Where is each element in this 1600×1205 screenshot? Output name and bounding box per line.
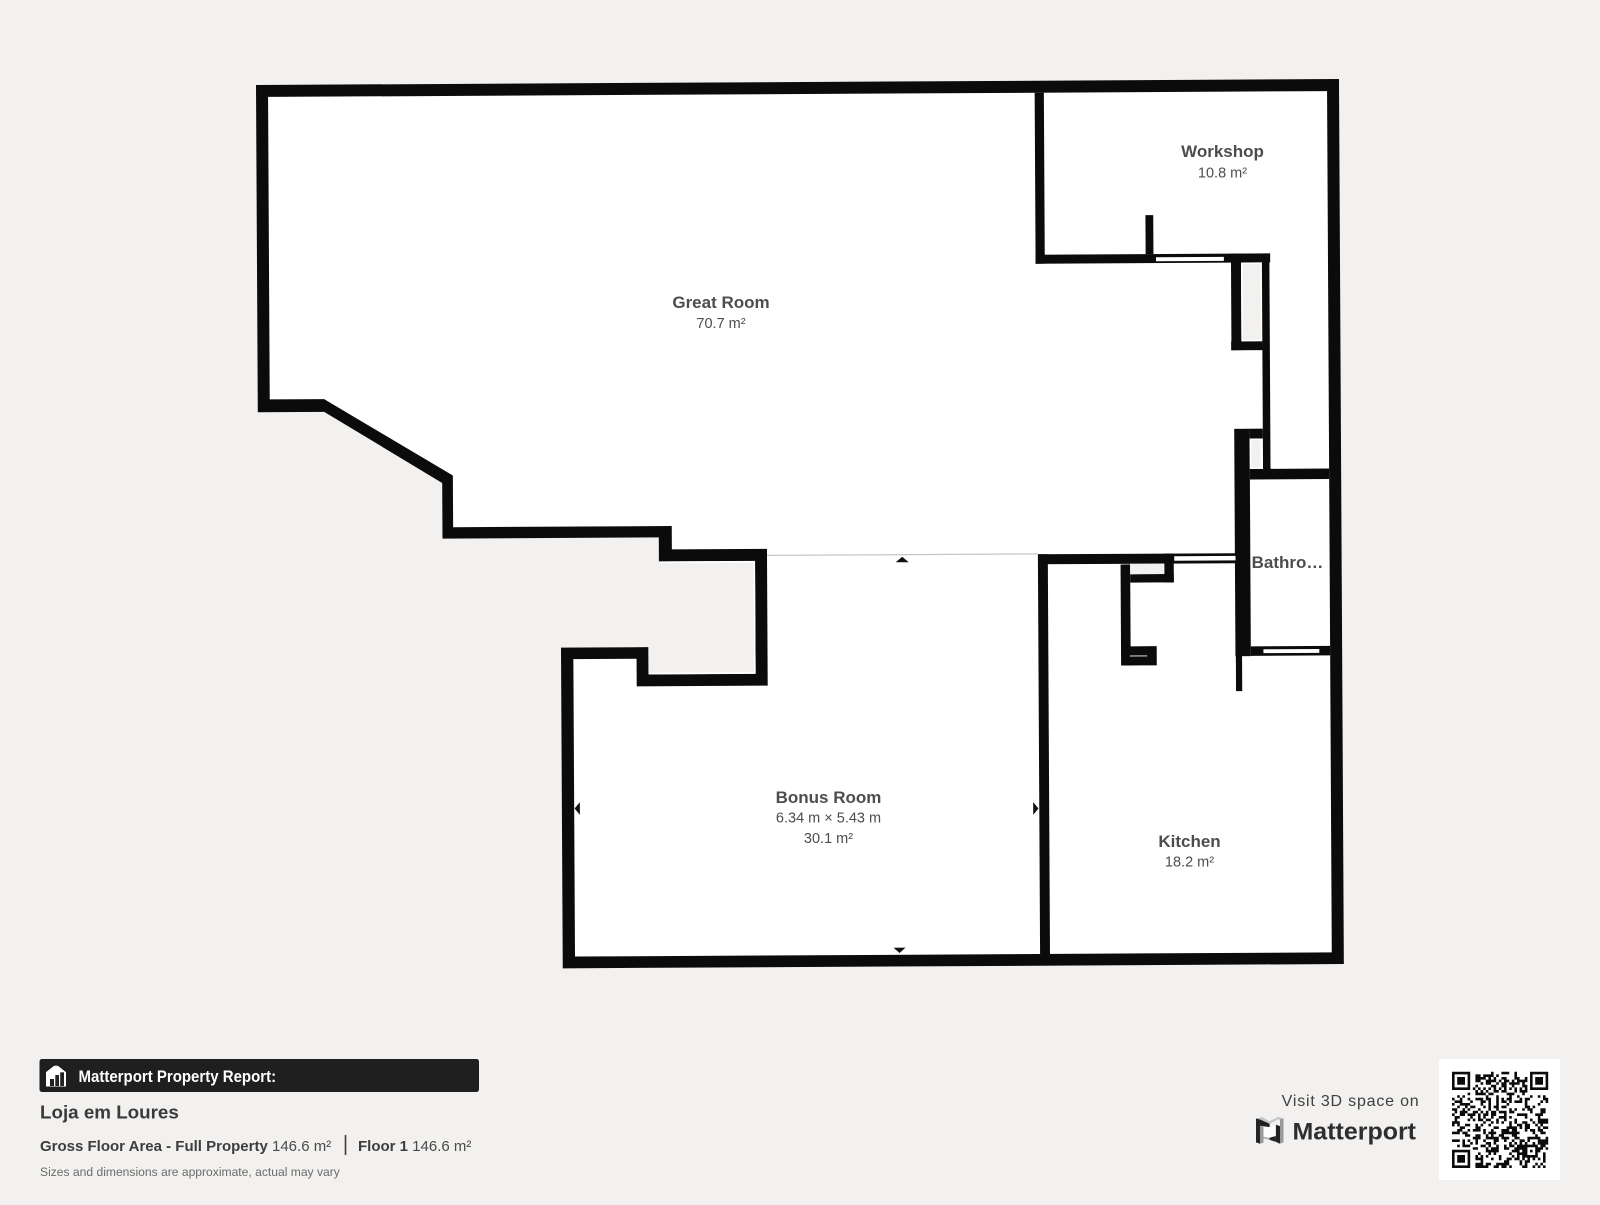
- svg-text:Kitchen: Kitchen: [1158, 832, 1220, 851]
- svg-text:6.34 m × 5.43 m: 6.34 m × 5.43 m: [776, 811, 881, 827]
- svg-text:Gross Floor Area - Full Proper: Gross Floor Area - Full Property 146.6 m…: [40, 1138, 331, 1155]
- svg-text:Sizes and dimensions are appro: Sizes and dimensions are approximate, ac…: [40, 1165, 341, 1179]
- svg-text:30.1 m²: 30.1 m²: [804, 831, 853, 847]
- svg-text:Loja em Loures: Loja em Loures: [40, 1102, 179, 1123]
- svg-text:70.7 m²: 70.7 m²: [696, 316, 745, 332]
- svg-text:18.2 m²: 18.2 m²: [1165, 855, 1214, 871]
- svg-text:Workshop: Workshop: [1181, 142, 1264, 161]
- svg-text:Floor 1 146.6 m²: Floor 1 146.6 m²: [358, 1138, 471, 1155]
- svg-text:Bathro…: Bathro…: [1252, 553, 1324, 572]
- svg-text:Visit 3D space on: Visit 3D space on: [1282, 1093, 1420, 1110]
- svg-text:Matterport Property Report:: Matterport Property Report:: [79, 1068, 277, 1086]
- svg-text:Matterport: Matterport: [1293, 1119, 1417, 1145]
- svg-text:10.8 m²: 10.8 m²: [1198, 166, 1247, 182]
- svg-text:Great Room: Great Room: [672, 293, 769, 312]
- svg-text:Bonus Room: Bonus Room: [776, 788, 882, 807]
